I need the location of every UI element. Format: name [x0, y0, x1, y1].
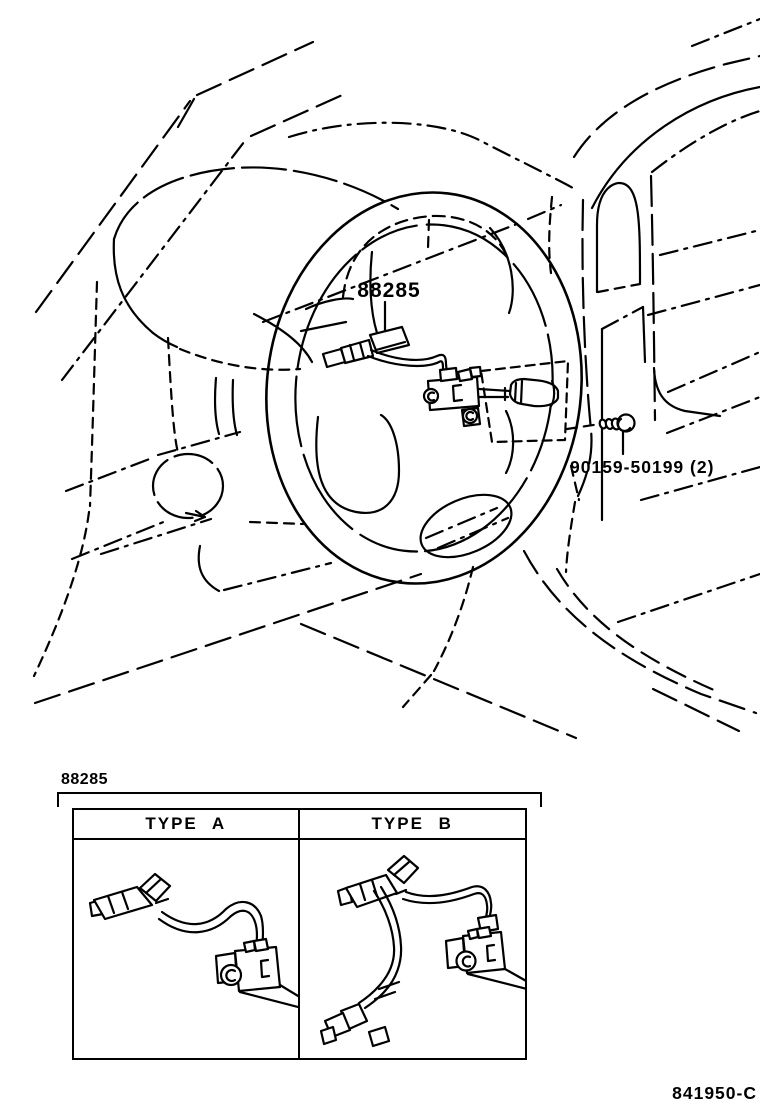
callout-screw-label: 90159-50199 (2) — [570, 457, 714, 477]
windshield-pillar-lines — [34, 42, 349, 676]
type-a-illustration — [74, 840, 300, 1056]
callout-88285: 88285 — [357, 279, 420, 331]
lower-dash-floor-lines — [35, 338, 756, 738]
door-frame — [566, 19, 760, 622]
type-b-switch-drawing — [321, 856, 526, 1046]
type-b-illustration — [300, 840, 526, 1056]
switch-assembly-88285 — [323, 327, 558, 426]
type-b-cell — [300, 840, 526, 1058]
parts-diagram-page: 88285 90159-50199 (2) 88285 TYPE A TYPE … — [0, 0, 760, 1112]
type-a-switch-drawing — [90, 874, 300, 1008]
variant-header-type-a: TYPE A — [74, 810, 300, 840]
variant-header-type-b: TYPE B — [300, 810, 526, 840]
type-a-cell — [74, 840, 300, 1058]
screw-icon — [599, 415, 635, 432]
figure-code: 841950-C — [620, 1083, 757, 1104]
variant-group-label: 88285 — [61, 771, 108, 789]
main-illustration: 88285 90159-50199 (2) — [0, 0, 760, 770]
callout-88285-label: 88285 — [357, 279, 420, 302]
variant-group-bracket — [57, 792, 542, 807]
variant-table: TYPE A TYPE B — [72, 808, 527, 1060]
